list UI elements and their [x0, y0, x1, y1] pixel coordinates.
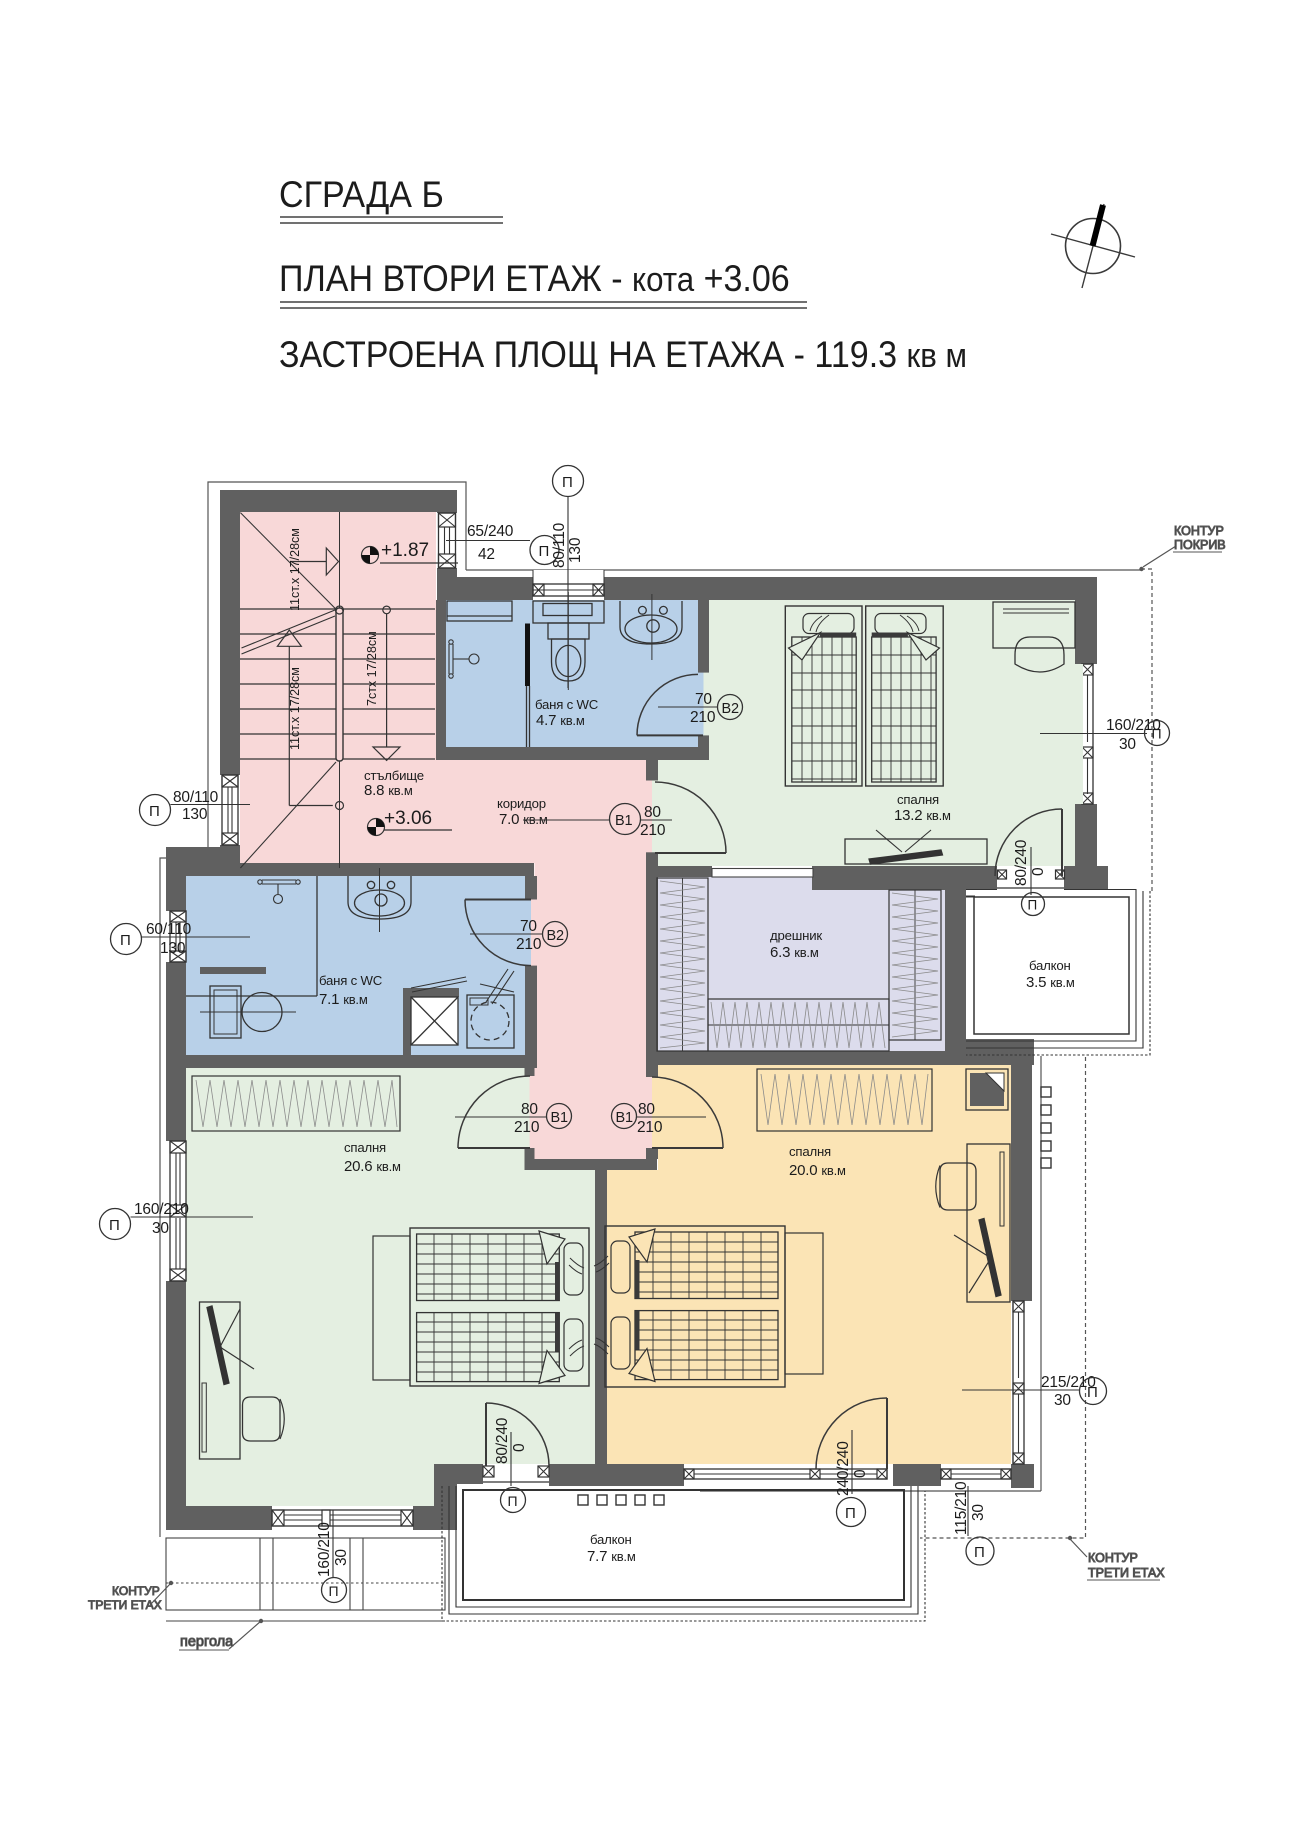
svg-text:7стх 17/28см: 7стх 17/28см	[365, 631, 379, 706]
svg-text:210: 210	[690, 709, 716, 726]
svg-text:13.2 кв.м: 13.2 кв.м	[894, 807, 951, 824]
svg-text:20.0 кв.м: 20.0 кв.м	[789, 1162, 846, 1179]
svg-text:баня с WC: баня с WC	[319, 973, 383, 988]
svg-text:+1.87: +1.87	[381, 540, 429, 561]
svg-text:В1: В1	[616, 1110, 633, 1126]
svg-text:КОНТУР: КОНТУР	[1088, 1551, 1138, 1565]
svg-text:В1: В1	[551, 1110, 568, 1126]
svg-text:дрешник: дрешник	[770, 928, 822, 943]
svg-text:30: 30	[1119, 736, 1136, 753]
svg-text:11ст.х 17/28см: 11ст.х 17/28см	[288, 667, 302, 750]
svg-text:баня с WC: баня с WC	[535, 697, 599, 712]
svg-text:80/110: 80/110	[173, 789, 219, 806]
svg-text:11ст.х 17/28см: 11ст.х 17/28см	[288, 528, 302, 611]
svg-text:210: 210	[516, 936, 542, 953]
svg-text:ЗАСТРОЕНА ПЛОЩ НА ЕТАЖА - 119.: ЗАСТРОЕНА ПЛОЩ НА ЕТАЖА - 119.3 кв м	[279, 334, 967, 376]
svg-text:П: П	[109, 1217, 120, 1234]
svg-text:30: 30	[970, 1504, 987, 1521]
svg-text:спалня: спалня	[897, 792, 939, 807]
svg-text:0: 0	[1030, 867, 1047, 876]
svg-text:ПОКРИВ: ПОКРИВ	[1174, 538, 1226, 552]
svg-text:П: П	[149, 803, 160, 820]
svg-text:70: 70	[695, 691, 712, 708]
svg-text:6.3 кв.м: 6.3 кв.м	[770, 944, 819, 961]
svg-text:80: 80	[644, 804, 661, 821]
svg-text:130: 130	[182, 806, 208, 823]
svg-text:В2: В2	[722, 701, 739, 717]
svg-text:пергола: пергола	[180, 1634, 234, 1650]
svg-text:42: 42	[478, 546, 495, 563]
svg-text:В2: В2	[547, 928, 564, 944]
svg-text:80/240: 80/240	[1013, 839, 1030, 886]
svg-text:80: 80	[638, 1101, 655, 1118]
svg-text:П: П	[1028, 898, 1038, 913]
svg-text:115/210: 115/210	[953, 1481, 970, 1535]
svg-text:+3.06: +3.06	[384, 808, 432, 829]
svg-text:П: П	[329, 1583, 339, 1599]
svg-text:КОНТУР: КОНТУР	[112, 1584, 160, 1598]
svg-text:130: 130	[160, 940, 186, 957]
svg-text:80: 80	[521, 1101, 538, 1118]
svg-text:0: 0	[511, 1443, 528, 1452]
svg-text:СГРАДА Б: СГРАДА Б	[279, 174, 444, 216]
svg-text:30: 30	[333, 1549, 350, 1566]
svg-text:80/240: 80/240	[494, 1417, 511, 1464]
svg-text:балкон: балкон	[590, 1532, 632, 1547]
svg-text:8.8 кв.м: 8.8 кв.м	[364, 782, 413, 799]
svg-text:П: П	[562, 474, 573, 491]
svg-text:30: 30	[1054, 1392, 1071, 1409]
svg-text:240/240: 240/240	[835, 1441, 852, 1496]
svg-text:4.7 кв.м: 4.7 кв.м	[536, 712, 585, 729]
svg-text:60/110: 60/110	[146, 921, 192, 938]
svg-text:3.5 кв.м: 3.5 кв.м	[1026, 974, 1075, 991]
svg-text:7.7 кв.м: 7.7 кв.м	[587, 1548, 636, 1565]
svg-text:КОНТУР: КОНТУР	[1174, 524, 1224, 538]
svg-text:70: 70	[520, 918, 537, 935]
svg-text:ТРЕТИ ЕТАХ: ТРЕТИ ЕТАХ	[1088, 1566, 1165, 1580]
svg-text:балкон: балкон	[1029, 958, 1071, 973]
svg-text:В1: В1	[615, 813, 632, 829]
svg-text:стълбище: стълбище	[364, 768, 424, 783]
svg-text:80/110: 80/110	[551, 522, 568, 568]
svg-text:П: П	[539, 543, 550, 560]
svg-text:спалня: спалня	[344, 1140, 386, 1155]
svg-text:П: П	[120, 932, 131, 949]
svg-text:коридор: коридор	[497, 796, 546, 811]
svg-text:7.1 кв.м: 7.1 кв.м	[319, 991, 368, 1008]
svg-text:20.6 кв.м: 20.6 кв.м	[344, 1158, 401, 1175]
svg-text:210: 210	[640, 822, 666, 839]
svg-text:30: 30	[152, 1220, 169, 1237]
svg-text:П: П	[845, 1505, 856, 1522]
svg-text:210: 210	[514, 1119, 540, 1136]
svg-text:210: 210	[637, 1119, 663, 1136]
svg-text:65/240: 65/240	[467, 523, 514, 540]
svg-text:П: П	[1152, 726, 1162, 742]
svg-text:ПЛАН ВТОРИ ЕТАЖ - кота +3.06: ПЛАН ВТОРИ ЕТАЖ - кота +3.06	[279, 258, 790, 300]
svg-text:спалня: спалня	[789, 1144, 831, 1159]
svg-text:П: П	[974, 1544, 985, 1561]
svg-text:130: 130	[567, 537, 584, 563]
svg-text:160/210: 160/210	[134, 1201, 189, 1218]
svg-text:ТРЕТИ ЕТАХ: ТРЕТИ ЕТАХ	[88, 1598, 162, 1612]
svg-text:160/210: 160/210	[316, 1522, 333, 1577]
svg-text:П: П	[508, 1493, 518, 1509]
svg-text:0: 0	[852, 1469, 869, 1478]
svg-text:П: П	[1087, 1384, 1098, 1401]
